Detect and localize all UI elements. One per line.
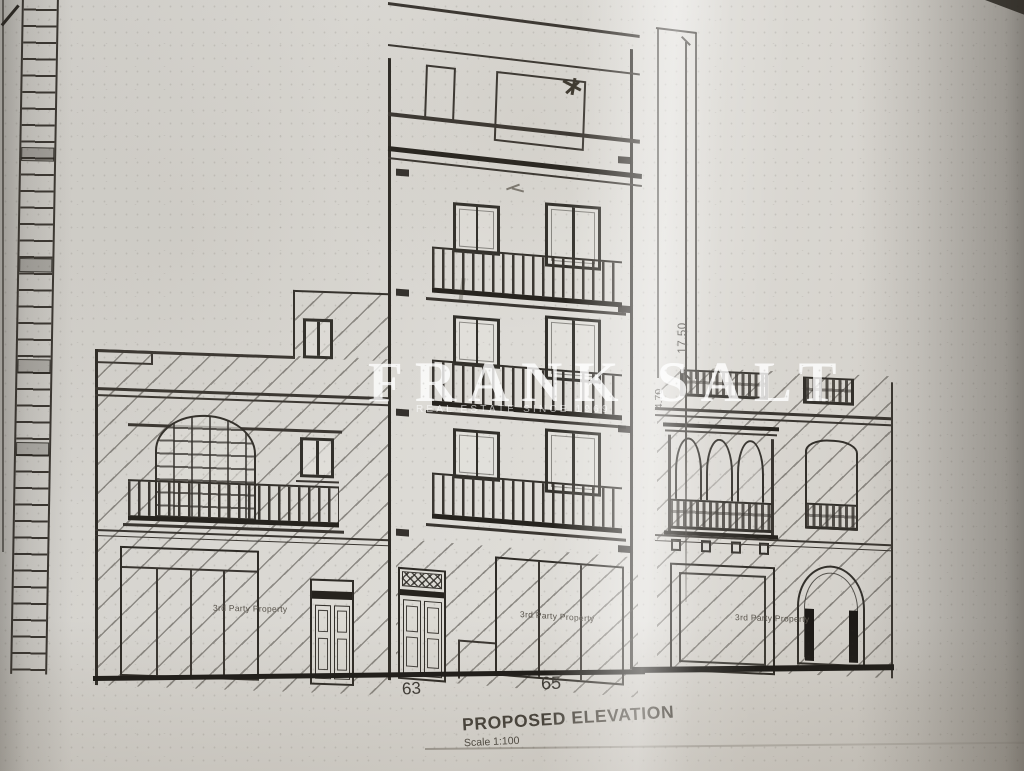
putlog-marker [618, 156, 631, 164]
ladder-dark-cell [21, 147, 54, 162]
loggia-arch [706, 438, 733, 501]
roof-structure-small [424, 64, 456, 122]
side-strip-line-right [695, 33, 697, 379]
mid-parapet-top [388, 2, 640, 37]
door-leaf [424, 601, 442, 678]
door-leaf [315, 605, 331, 680]
shopfront-mullion [223, 570, 225, 677]
loggia-arch [737, 440, 764, 503]
mid-entrance-door [398, 567, 446, 683]
ladder-scale-strip [10, 0, 59, 675]
left-entrance-door [310, 579, 354, 687]
street-number-65: 65 [541, 673, 562, 695]
ladder-dark-cell [16, 442, 49, 457]
side-strip-line-left [657, 28, 659, 378]
putlog-marker [618, 545, 631, 553]
door-leaf [334, 605, 350, 680]
property-label-left: 3rd Party Property [213, 603, 288, 614]
right-window-balustrade [806, 503, 857, 531]
ladder-dark-cell [17, 359, 50, 374]
putlog-marker [396, 289, 409, 297]
left-balcony-railing [128, 479, 339, 527]
ladder-dark-cell [19, 258, 52, 273]
left-building-elevation: 3rd Party Property [95, 283, 391, 695]
putlog-marker [396, 529, 409, 537]
paper-left-edge-line [2, 0, 4, 552]
left-parapet-window [303, 318, 333, 359]
shopfront-mullion [156, 568, 158, 675]
door-lintel [312, 591, 352, 600]
left-shopfront [120, 546, 259, 681]
watermark-tagline: REAL ESTATE SINCE 1969 [416, 404, 611, 415]
putlog-marker [618, 425, 631, 433]
door-leaf [403, 599, 421, 676]
putlog-marker [618, 305, 631, 313]
shopfront-mullion [190, 569, 192, 676]
door-transom-lattice [402, 571, 442, 589]
left-first-floor-window [300, 437, 334, 478]
property-label-right: 3rd Party Property [735, 612, 810, 624]
scanned-elevation-drawing: 3rd Party Property [0, 0, 1024, 771]
putlog-marker [396, 169, 409, 177]
right-edge-wall [891, 382, 893, 678]
right-loggia [668, 423, 774, 542]
street-number-63: 63 [401, 679, 421, 700]
loggia-arch [675, 437, 702, 500]
door-lintel [400, 589, 444, 598]
side-strip-top [656, 27, 697, 34]
door-dark-post [849, 610, 858, 662]
